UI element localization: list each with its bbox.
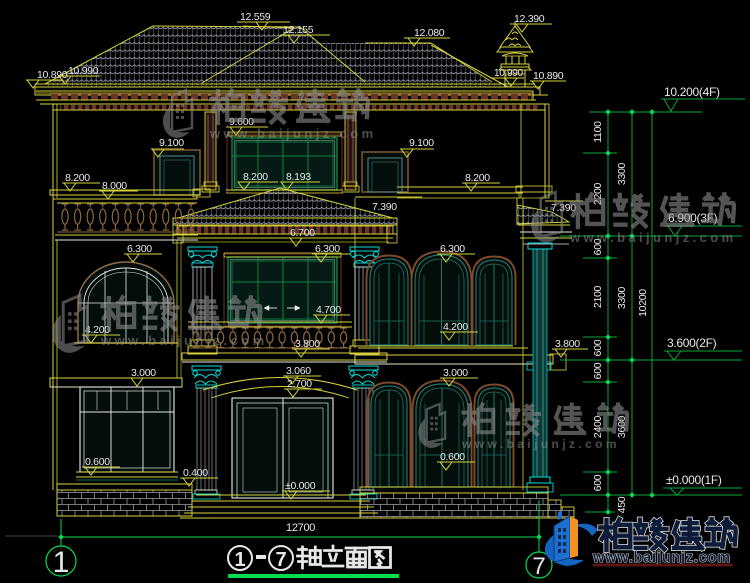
svg-text:6.300: 6.300 (127, 243, 152, 255)
svg-text:10.990: 10.990 (494, 68, 524, 79)
svg-text:2100: 2100 (592, 285, 604, 308)
svg-text:8.193: 8.193 (286, 171, 311, 183)
svg-text:3300: 3300 (616, 286, 628, 309)
svg-text:10.200(4F): 10.200(4F) (664, 85, 720, 99)
svg-text:450: 450 (616, 496, 628, 513)
svg-text:2.700: 2.700 (287, 378, 312, 390)
svg-text:0.400: 0.400 (183, 467, 208, 479)
svg-text:±0.000(1F): ±0.000(1F) (666, 473, 722, 487)
svg-text:3300: 3300 (616, 162, 628, 185)
svg-text:12.080: 12.080 (414, 27, 445, 39)
svg-text:12700: 12700 (286, 522, 315, 534)
svg-text:0.600: 0.600 (440, 451, 465, 463)
svg-text:7: 7 (275, 549, 286, 571)
svg-text:8.200: 8.200 (65, 172, 90, 184)
svg-text:10.890: 10.890 (37, 69, 68, 81)
svg-text:3.800: 3.800 (295, 338, 320, 350)
svg-text:12.155: 12.155 (283, 24, 314, 36)
svg-text:3.800: 3.800 (555, 338, 580, 350)
svg-text:3.060: 3.060 (286, 365, 311, 377)
svg-text:www.baijunjz.com: www.baijunjz.com (100, 333, 268, 348)
svg-text:3.000: 3.000 (443, 367, 468, 379)
svg-text:8.200: 8.200 (465, 172, 490, 184)
svg-text:2400: 2400 (592, 415, 604, 438)
svg-text:6.300: 6.300 (440, 243, 465, 255)
svg-text:4.200: 4.200 (443, 321, 468, 333)
svg-text:3.600(2F): 3.600(2F) (667, 336, 717, 350)
svg-text:7: 7 (532, 553, 545, 580)
svg-text:1: 1 (234, 549, 245, 571)
svg-text:4.700: 4.700 (316, 304, 341, 316)
svg-text:600: 600 (592, 474, 604, 491)
svg-text:www.baijunjz.com: www.baijunjz.com (461, 437, 620, 451)
svg-text:10.890: 10.890 (533, 70, 564, 82)
svg-text:6.300: 6.300 (315, 243, 340, 255)
svg-text:8.200: 8.200 (243, 171, 268, 183)
svg-text:12.390: 12.390 (514, 13, 545, 25)
svg-text:www.baijunjz.com: www.baijunjz.com (209, 126, 377, 141)
svg-text:±0.000: ±0.000 (285, 480, 316, 492)
svg-text:1100: 1100 (592, 121, 604, 143)
svg-text:3.000: 3.000 (131, 367, 156, 379)
svg-text:600: 600 (592, 339, 604, 356)
svg-text:9.100: 9.100 (159, 137, 184, 149)
svg-text:9.100: 9.100 (409, 137, 434, 149)
svg-text:600: 600 (592, 362, 604, 379)
svg-text:8.000: 8.000 (102, 180, 127, 192)
svg-text:6.700: 6.700 (290, 227, 315, 239)
svg-text:7.390: 7.390 (372, 201, 397, 213)
svg-text:0.600: 0.600 (85, 456, 110, 468)
svg-text:12.559: 12.559 (240, 11, 271, 23)
svg-text:10200: 10200 (637, 289, 649, 317)
svg-text:www.baijunjz.com: www.baijunjz.com (569, 230, 737, 245)
svg-text:1: 1 (53, 546, 70, 579)
svg-text:10.990: 10.990 (68, 65, 99, 77)
